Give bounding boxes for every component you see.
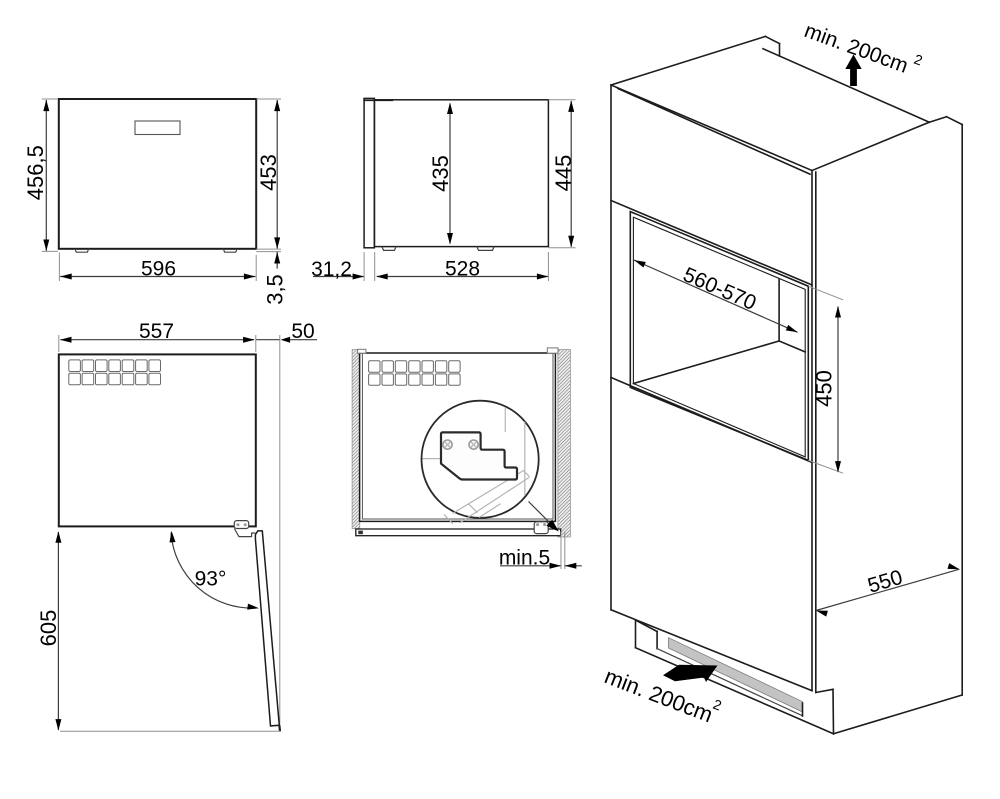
svg-text:605: 605	[36, 610, 61, 647]
svg-text:435: 435	[428, 155, 453, 192]
svg-text:557: 557	[139, 320, 174, 343]
svg-text:3,5: 3,5	[263, 274, 288, 305]
svg-text:93°: 93°	[195, 568, 227, 591]
svg-text:50: 50	[291, 320, 314, 343]
svg-text:528: 528	[445, 258, 480, 281]
svg-text:453: 453	[256, 154, 281, 191]
svg-text:456,5: 456,5	[23, 145, 48, 200]
svg-text:min.5: min.5	[499, 547, 550, 570]
svg-text:445: 445	[551, 155, 576, 192]
svg-text:596: 596	[141, 258, 176, 281]
svg-text:31,2: 31,2	[311, 258, 352, 281]
svg-text:450: 450	[812, 370, 837, 407]
